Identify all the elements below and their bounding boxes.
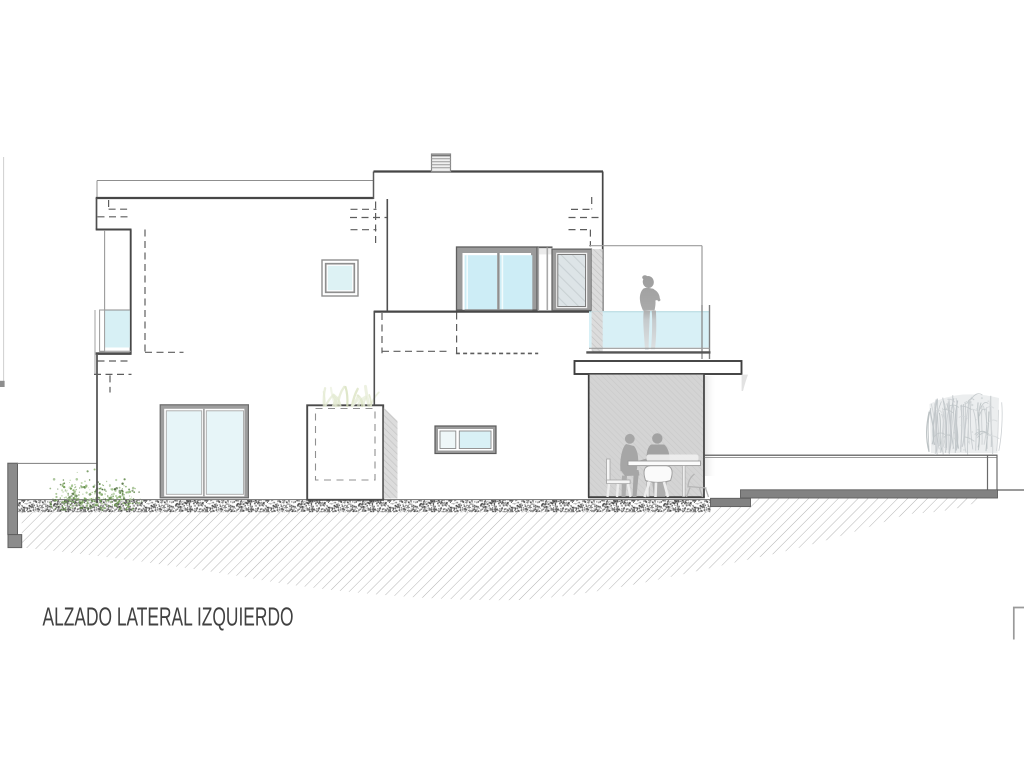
svg-text:ALZADO LATERAL IZQUIERDO: ALZADO LATERAL IZQUIERDO — [43, 604, 294, 632]
